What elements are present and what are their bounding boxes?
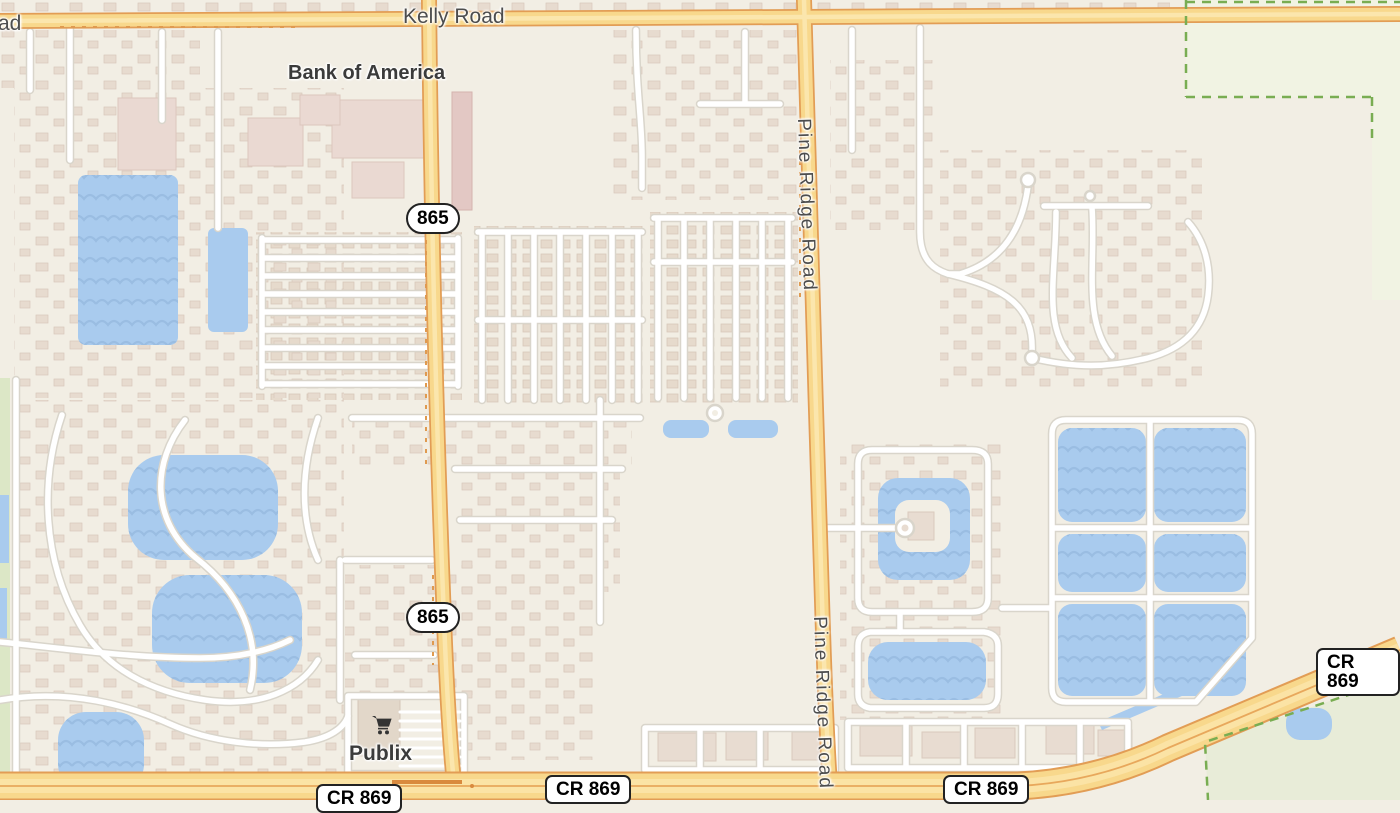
route-shield-cr869-left: CR 869 — [316, 784, 402, 813]
map-tiles — [0, 0, 1400, 800]
route-shield-cr869-text: CR 869 — [1327, 653, 1389, 691]
shopping-cart-icon — [371, 714, 395, 736]
route-shield-cr869-text: CR 869 — [327, 789, 391, 808]
route-shield-cr869-text: CR 869 — [556, 780, 620, 799]
route-shield-865-text: 865 — [417, 209, 449, 228]
route-shield-cr869-text: CR 869 — [954, 780, 1018, 799]
route-shield-cr869-diagonal: CR 869 — [1316, 648, 1400, 696]
route-shield-865-south: 865 — [406, 602, 460, 633]
route-shield-865: 865 — [406, 203, 460, 234]
map-canvas[interactable]: ad Kelly Road Bank of America Pine Ridge… — [0, 0, 1400, 800]
route-shield-865-text: 865 — [417, 608, 449, 627]
